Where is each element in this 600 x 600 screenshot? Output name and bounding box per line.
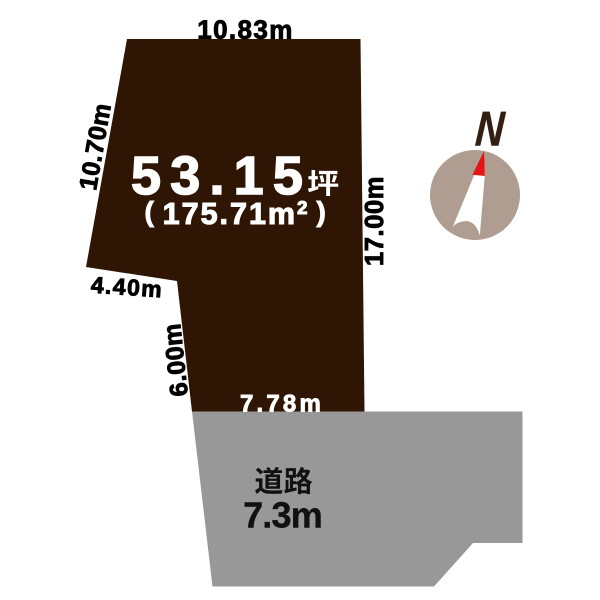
svg-text:175.71m2: 175.71m2 xyxy=(163,197,310,231)
svg-text:): ) xyxy=(317,196,326,227)
svg-text:(: ( xyxy=(145,196,155,227)
svg-text:N: N xyxy=(474,103,507,157)
svg-text:4.40m: 4.40m xyxy=(90,272,164,303)
svg-text:7.3m: 7.3m xyxy=(243,495,322,536)
svg-text:7.78m: 7.78m xyxy=(240,391,324,418)
svg-text:17.00m: 17.00m xyxy=(361,176,389,266)
svg-text:10.83m: 10.83m xyxy=(197,15,294,45)
